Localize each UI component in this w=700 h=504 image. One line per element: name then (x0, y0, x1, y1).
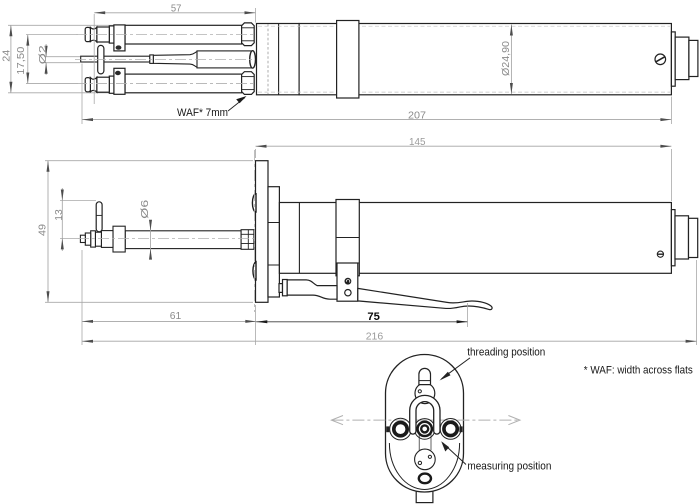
svg-text:49: 49 (36, 224, 48, 236)
svg-text:13: 13 (53, 209, 65, 221)
svg-text:207: 207 (408, 109, 426, 121)
svg-text:Ø24,90: Ø24,90 (500, 41, 512, 76)
svg-text:threading position: threading position (467, 347, 545, 359)
svg-text:WAF* 7mm: WAF* 7mm (177, 107, 228, 119)
svg-text:17,50: 17,50 (15, 47, 27, 75)
svg-text:24: 24 (0, 50, 12, 62)
svg-text:measuring position: measuring position (467, 460, 551, 472)
svg-text:75: 75 (367, 311, 380, 323)
svg-text:61: 61 (170, 311, 182, 322)
svg-text:145: 145 (409, 136, 426, 148)
svg-text:Ø6: Ø6 (139, 199, 151, 218)
svg-text:Ø2: Ø2 (37, 45, 49, 64)
svg-text:216: 216 (366, 331, 384, 343)
svg-text:* WAF: width across flats: * WAF: width across flats (584, 365, 693, 377)
svg-text:57: 57 (171, 2, 182, 14)
